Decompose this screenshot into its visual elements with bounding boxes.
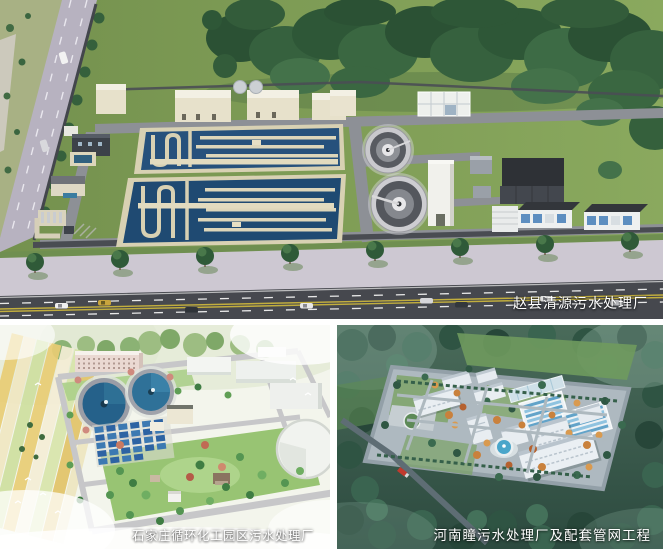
render-henan-plant: 河南瞳污水处理厂及配套管网工程 — [337, 325, 663, 549]
blue-facade-building-2 — [584, 204, 648, 230]
office-building — [75, 351, 143, 372]
zhaoxian-plant-illustration — [0, 0, 663, 319]
project-collage: 赵县清源污水处理厂 — [0, 0, 663, 549]
aeration-basin-upper — [134, 124, 345, 174]
clarifier-tank-large — [368, 173, 430, 235]
render-shijiazhuang-plant: 石家庄循环化工园区污水处理厂 — [0, 325, 330, 549]
shijiazhuang-plant-illustration — [0, 325, 330, 549]
aeration-basin-lower — [116, 174, 346, 247]
caption-henan-plant: 河南瞳污水处理厂及配套管网工程 — [434, 524, 652, 544]
blue-facade-building-1 — [518, 202, 580, 228]
caption-shijiazhuang-plant: 石家庄循环化工园区污水处理厂 — [132, 525, 314, 544]
henan-plant-illustration — [337, 325, 663, 549]
render-zhaoxian-plant: 赵县清源污水处理厂 — [0, 0, 663, 319]
caption-zhaoxian-plant: 赵县清源污水处理厂 — [513, 293, 648, 313]
clarifier-tank-small — [362, 124, 414, 176]
